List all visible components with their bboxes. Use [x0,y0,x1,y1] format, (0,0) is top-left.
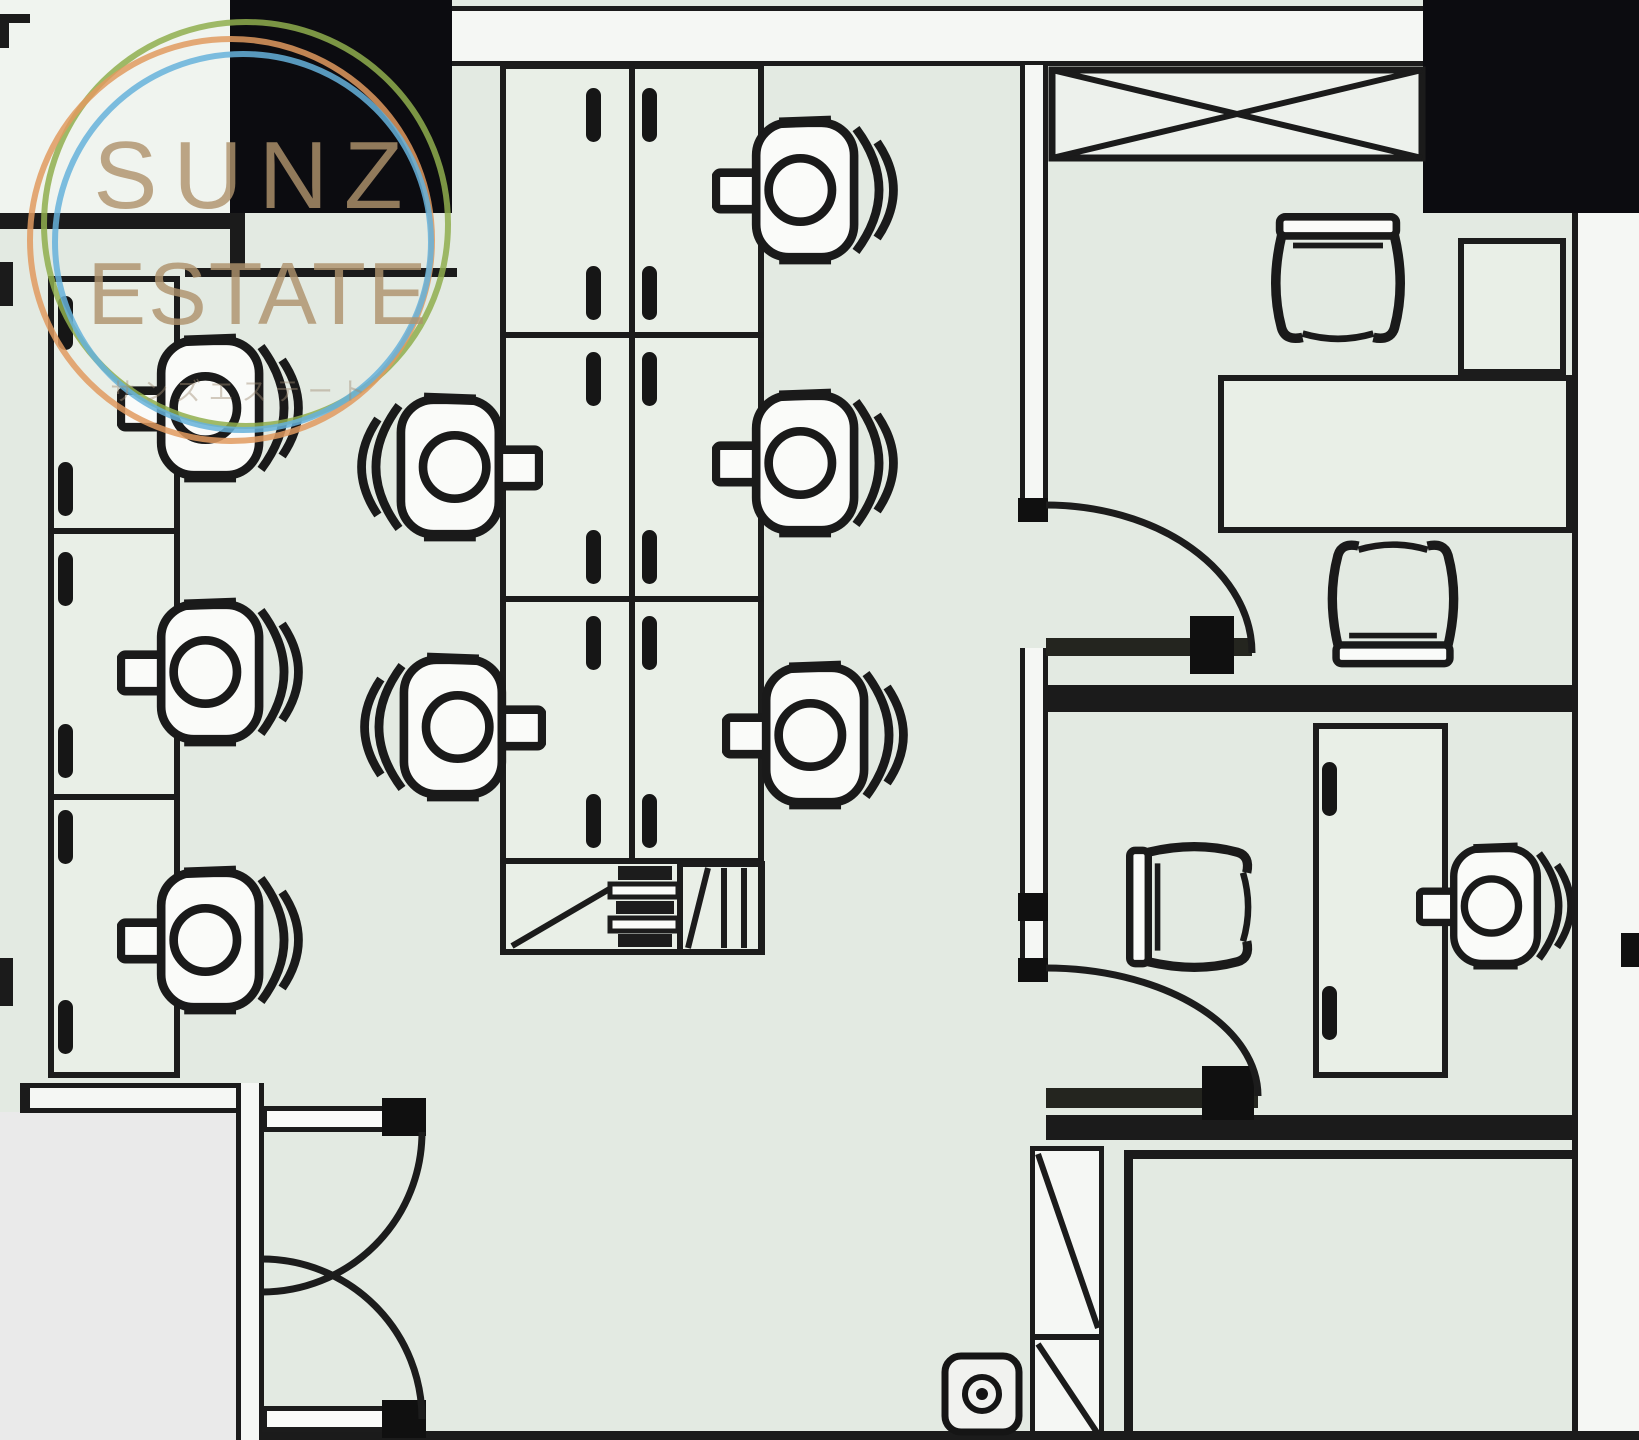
floor-outlet-icon [945,1356,1019,1432]
guest-chair [1130,847,1248,968]
office-chair [716,121,894,259]
office-chair [121,871,299,1009]
hatch-line [1038,1154,1098,1328]
office-chair [365,658,543,796]
cabinet-diagonal [512,884,618,946]
printer-icon [610,866,678,947]
guest-chair [1276,217,1400,339]
office-chair [121,603,299,741]
office-chair [121,339,299,477]
double-door-arc-bottom [262,1259,422,1419]
door-arc-office-lower [1046,968,1258,1096]
office-chair [716,394,894,532]
double-door-arc-top [262,1132,422,1292]
plan-linework [0,0,1639,1440]
guest-chair [1332,545,1453,664]
floor-plan: SUNZ ESTATE サンズエステート [0,0,1639,1440]
cabinet-rack [680,864,762,952]
door-arc-office-upper [1046,505,1252,653]
hatch-line [1038,1344,1098,1434]
office-chair [362,398,540,536]
office-chair [726,666,904,804]
office-chair [1419,847,1571,965]
